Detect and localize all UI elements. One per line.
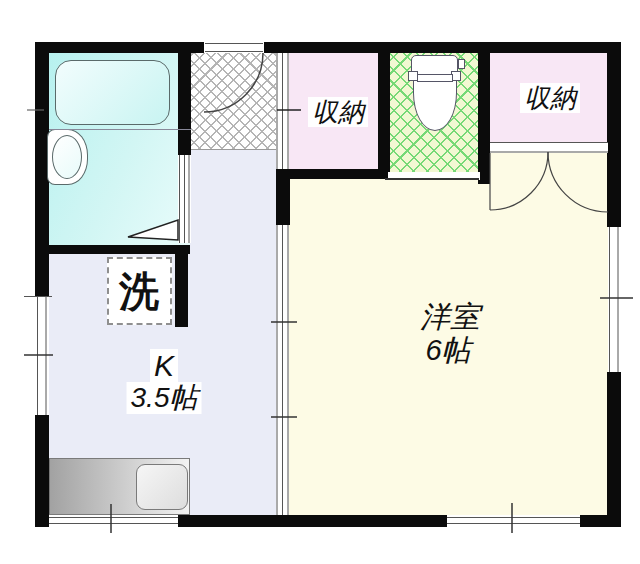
wall-bathroom-bottom: [35, 245, 190, 254]
storage-entrance-sliding-door: [276, 53, 289, 169]
kitchen-room-sliding-partition: [276, 225, 289, 515]
bathroom-sliding-door: [178, 155, 191, 243]
window-bottom-right-frame: [447, 518, 580, 524]
storage-room-label: 収納: [520, 83, 580, 113]
window-left-frame: [38, 297, 47, 415]
wall-bottom-right: [580, 515, 621, 527]
western-room-size-label: 6帖: [425, 336, 470, 365]
wall-bathroom-right: [178, 42, 191, 155]
wall-left-lower: [35, 415, 49, 527]
toilet-flush-button: [458, 59, 465, 69]
toilet-door: [388, 172, 480, 180]
wall-top-right: [264, 42, 620, 53]
wall-right-upper: [607, 42, 621, 227]
kitchen-type-label: K: [150, 349, 178, 383]
wall-bottom-middle: [178, 515, 447, 527]
window-bottom-left-frame: [49, 518, 178, 524]
wall-storage-entrance-bottom: [276, 169, 390, 179]
wash-basin-bowl: [52, 135, 82, 179]
laundry-label: 洗: [119, 271, 159, 311]
floorplan: 収納 収納 洗 K 3.5帖 洋室 6帖: [0, 0, 640, 564]
window-right-frame: [610, 227, 619, 372]
storage-entrance-label: 収納: [308, 97, 368, 127]
bathtub: [55, 60, 170, 125]
kitchen-sink: [136, 464, 188, 510]
entrance-hatch-floor: [190, 53, 277, 150]
entrance-door: [204, 42, 264, 53]
kitchen-size-label: 3.5帖: [127, 382, 202, 414]
wall-toilet-left: [378, 42, 390, 173]
toilet-seat-bar: [417, 74, 453, 82]
wall-laundry-stub: [175, 254, 188, 327]
wall-toilet-right: [478, 42, 490, 184]
western-room-label: 洋室: [420, 302, 480, 332]
wall-right-lower: [607, 372, 621, 527]
closet-front-track: [490, 142, 608, 153]
